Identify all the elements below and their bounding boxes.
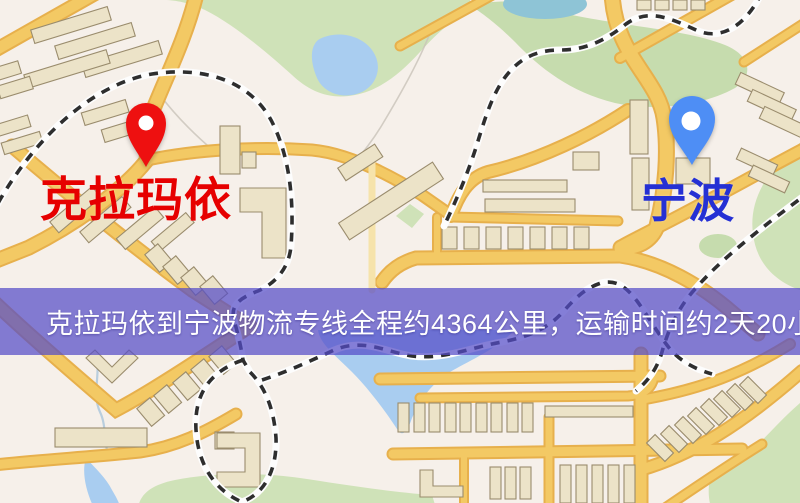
origin-pin-hole bbox=[139, 116, 154, 131]
logistics-route-map: 克拉玛依 宁波 克拉玛依到宁波物流专线全程约4364公里，运输时间约2天20小时… bbox=[0, 0, 800, 503]
origin-city-label: 克拉玛依 bbox=[40, 176, 232, 223]
destination-pin-hole bbox=[682, 112, 701, 131]
map-canvas bbox=[0, 0, 800, 503]
route-info-banner: 克拉玛依到宁波物流专线全程约4364公里，运输时间约2天20小时. bbox=[0, 288, 800, 355]
destination-city-label: 宁波 bbox=[641, 178, 735, 224]
route-info-text: 克拉玛依到宁波物流专线全程约4364公里，运输时间约2天20小时. bbox=[0, 302, 800, 341]
